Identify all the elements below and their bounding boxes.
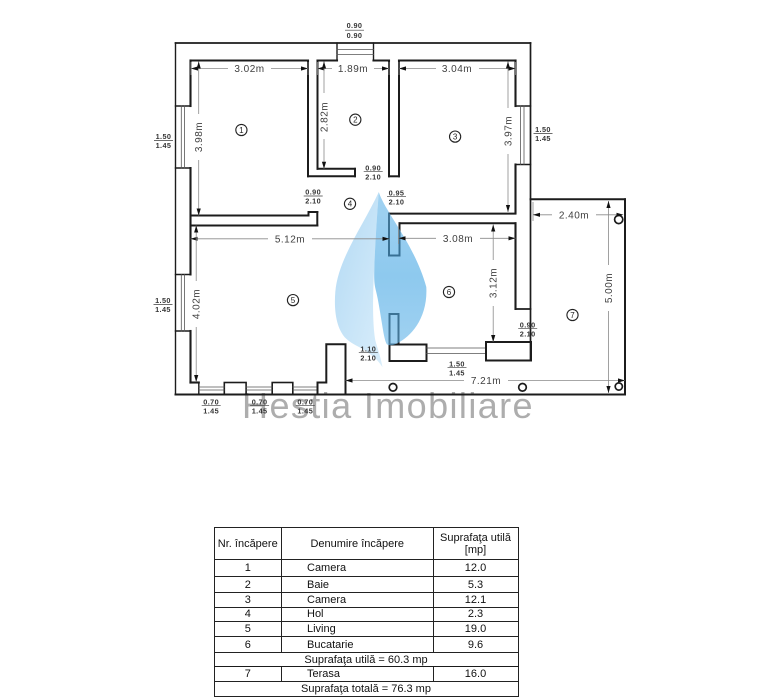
svg-text:7.21m: 7.21m: [471, 376, 501, 387]
svg-text:5: 5: [291, 296, 296, 305]
svg-text:3.12m: 3.12m: [489, 268, 500, 298]
svg-text:3.98m: 3.98m: [194, 122, 205, 152]
svg-text:3.04m: 3.04m: [442, 64, 472, 75]
svg-text:0.90: 0.90: [347, 31, 363, 40]
svg-text:1.50: 1.50: [156, 132, 172, 141]
svg-text:7: 7: [570, 311, 575, 320]
svg-text:4: 4: [348, 200, 353, 209]
svg-text:4.02m: 4.02m: [192, 289, 203, 319]
svg-text:1.45: 1.45: [252, 406, 268, 415]
svg-text:1.50: 1.50: [155, 296, 171, 305]
svg-text:2.10: 2.10: [305, 197, 321, 206]
svg-text:0.70: 0.70: [252, 397, 268, 406]
svg-text:3.02m: 3.02m: [234, 64, 264, 75]
svg-text:0.90: 0.90: [347, 21, 363, 30]
svg-text:5.12m: 5.12m: [275, 234, 305, 245]
svg-text:2: 2: [353, 116, 358, 125]
svg-text:1.45: 1.45: [155, 305, 171, 314]
svg-text:1.10: 1.10: [360, 344, 376, 353]
svg-text:1.89m: 1.89m: [338, 64, 368, 75]
svg-text:0.70: 0.70: [297, 397, 313, 406]
svg-text:Hestia Imobiliare: Hestia Imobiliare: [242, 385, 534, 426]
svg-text:3.97m: 3.97m: [504, 116, 515, 146]
svg-text:0.90: 0.90: [520, 320, 536, 329]
svg-text:0.95: 0.95: [389, 188, 405, 197]
svg-text:3: 3: [453, 132, 458, 141]
svg-text:1.45: 1.45: [449, 368, 465, 377]
svg-text:1.50: 1.50: [449, 359, 465, 368]
svg-text:6: 6: [447, 288, 452, 297]
svg-text:2.10: 2.10: [520, 329, 536, 338]
svg-text:0.70: 0.70: [203, 397, 219, 406]
svg-text:2.10: 2.10: [389, 197, 405, 206]
svg-text:1: 1: [239, 126, 244, 135]
svg-text:2.40m: 2.40m: [559, 210, 589, 221]
svg-text:2.82m: 2.82m: [320, 102, 331, 132]
svg-text:1.45: 1.45: [297, 406, 313, 415]
svg-text:0.90: 0.90: [365, 163, 381, 172]
svg-text:1.45: 1.45: [203, 406, 219, 415]
svg-text:3.08m: 3.08m: [443, 234, 473, 245]
svg-text:1.45: 1.45: [156, 141, 172, 150]
svg-text:5.00m: 5.00m: [604, 273, 615, 303]
svg-text:1.45: 1.45: [535, 134, 551, 143]
svg-text:1.50: 1.50: [535, 125, 551, 134]
svg-text:2.10: 2.10: [360, 353, 376, 362]
svg-text:0.90: 0.90: [305, 188, 321, 197]
svg-text:2.10: 2.10: [365, 172, 381, 181]
